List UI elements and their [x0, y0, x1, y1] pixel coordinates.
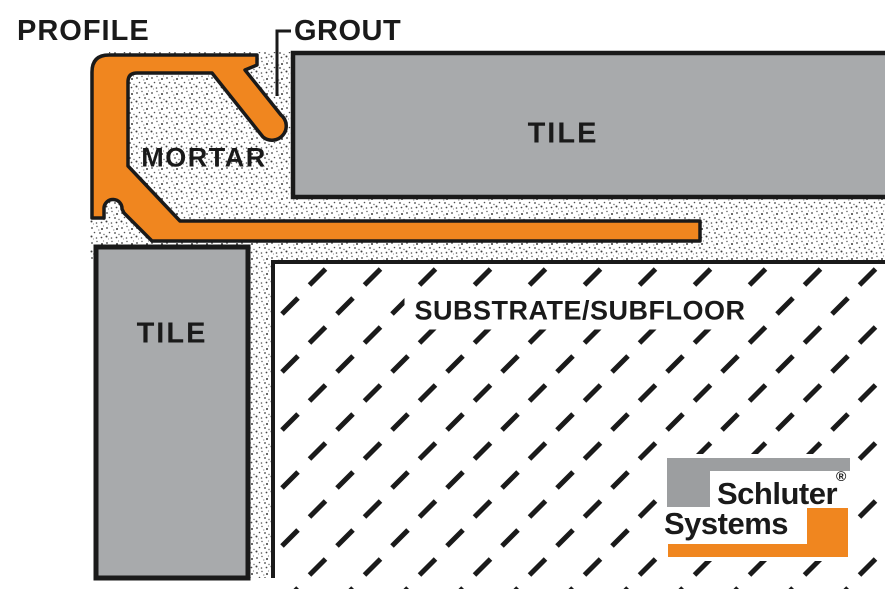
tile-top-label: TILE — [528, 120, 599, 149]
tile-left-label: TILE — [137, 320, 208, 349]
substrate-border-mask — [265, 578, 281, 589]
substrate-label: SUBSTRATE/SUBFLOOR — [405, 293, 756, 330]
profile-label: PROFILE — [17, 17, 150, 46]
schluter-systems-logo: Schluter ® Systems — [662, 454, 854, 561]
mortar-strip-vertical — [248, 247, 272, 578]
logo-text-line2: Systems — [664, 508, 788, 539]
tile-left-rect — [96, 247, 248, 578]
grout-label: GROUT — [294, 17, 401, 46]
mortar-label: MORTAR — [141, 145, 266, 172]
registered-trademark-icon: ® — [836, 469, 846, 483]
logo-text-line1: Schluter — [717, 478, 837, 509]
diagram-stage: PROFILE GROUT MORTAR TILE TILE SUBSTRATE… — [0, 0, 885, 589]
